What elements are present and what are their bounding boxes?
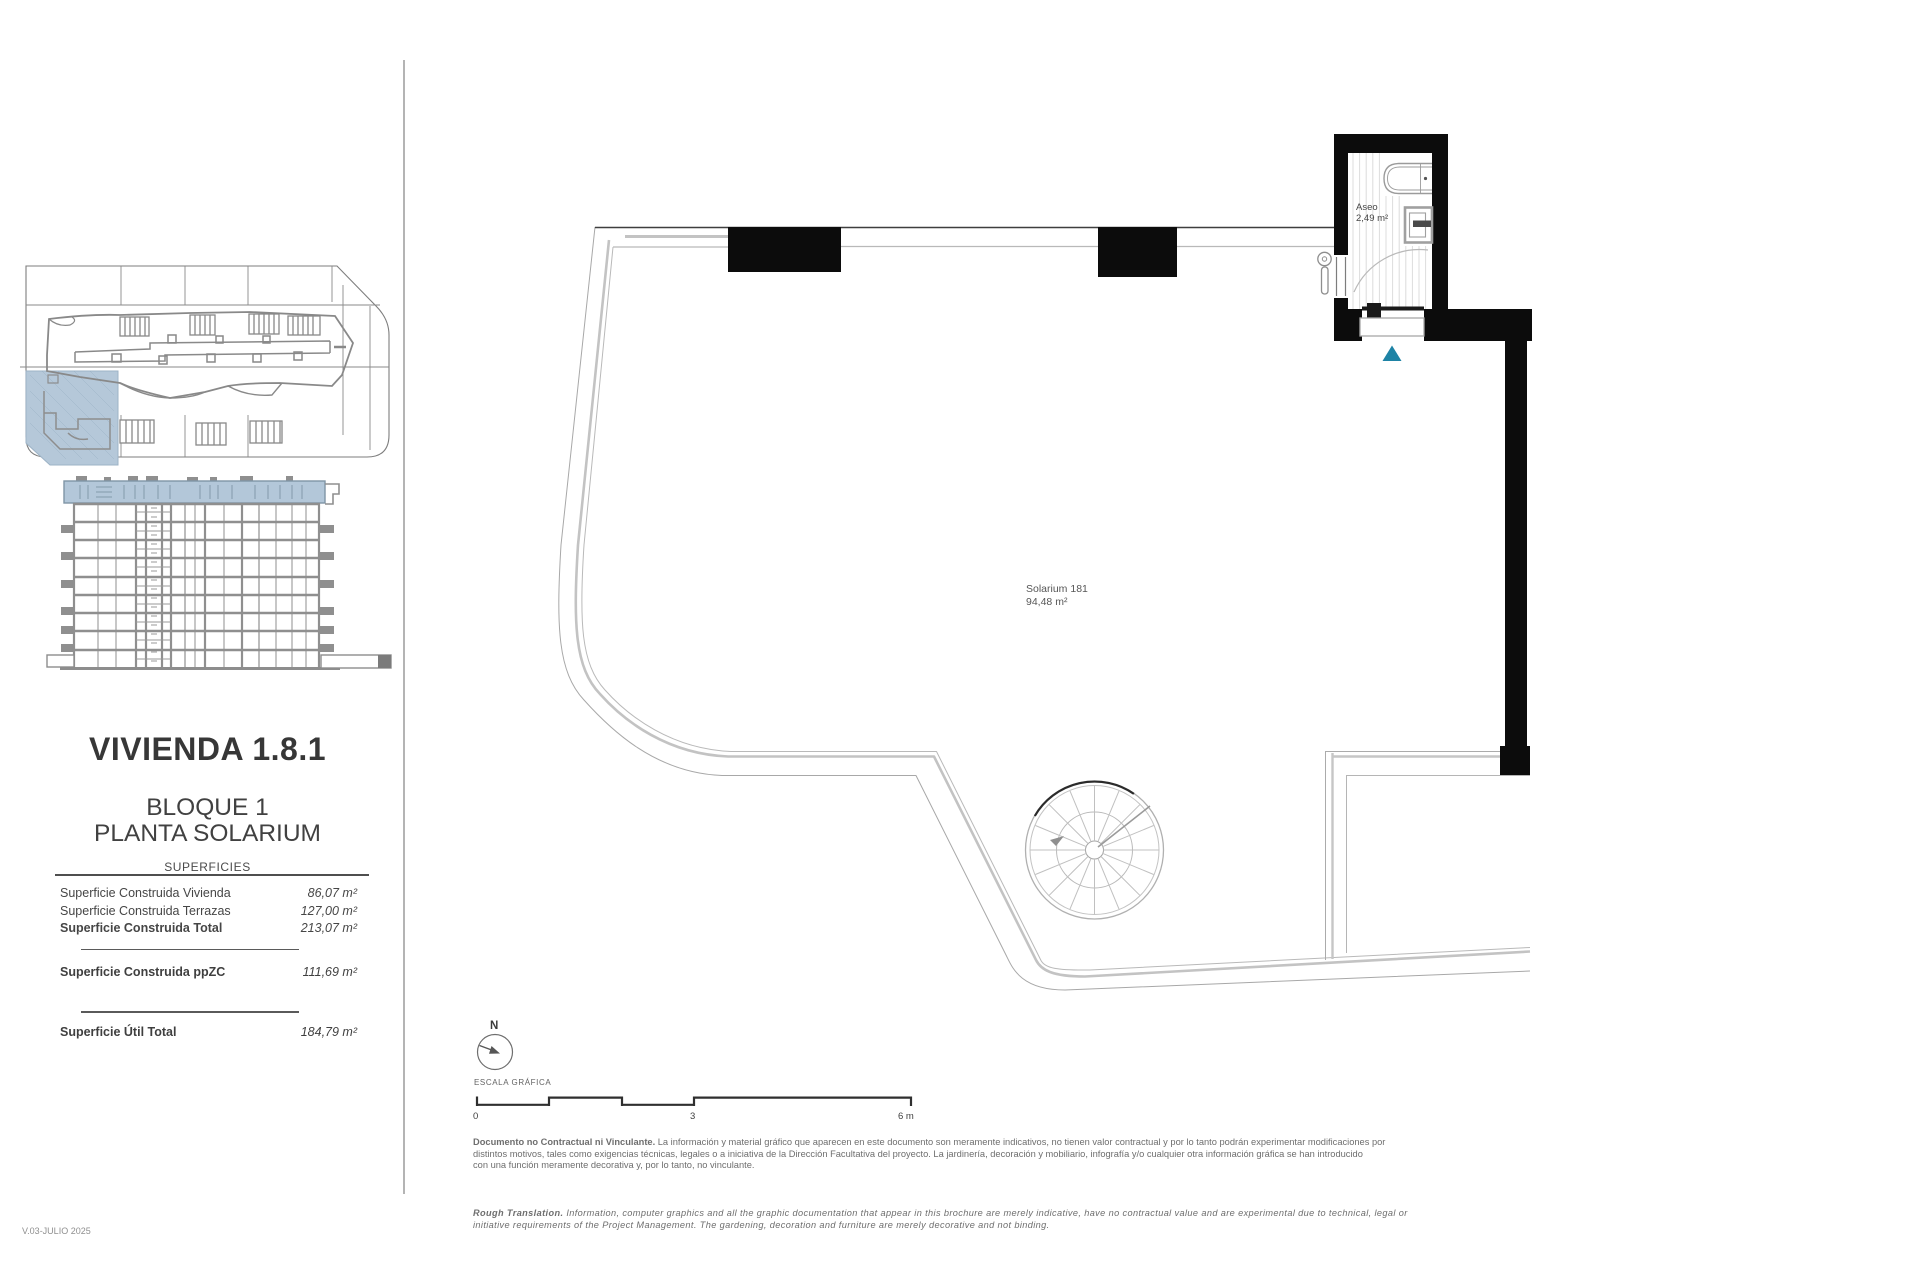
svg-text:94,48 m²: 94,48 m²	[1026, 596, 1068, 608]
svg-text:3: 3	[690, 1111, 695, 1122]
svg-text:Solarium 181: Solarium 181	[1026, 583, 1088, 595]
svg-text:2,49 m²: 2,49 m²	[1356, 213, 1388, 224]
svg-text:0: 0	[473, 1111, 478, 1122]
svg-text:Aseo: Aseo	[1356, 202, 1378, 213]
svg-text:6 m: 6 m	[898, 1111, 914, 1122]
svg-text:ESCALA GRÁFICA: ESCALA GRÁFICA	[474, 1078, 551, 1087]
svg-text:N: N	[490, 1020, 498, 1032]
